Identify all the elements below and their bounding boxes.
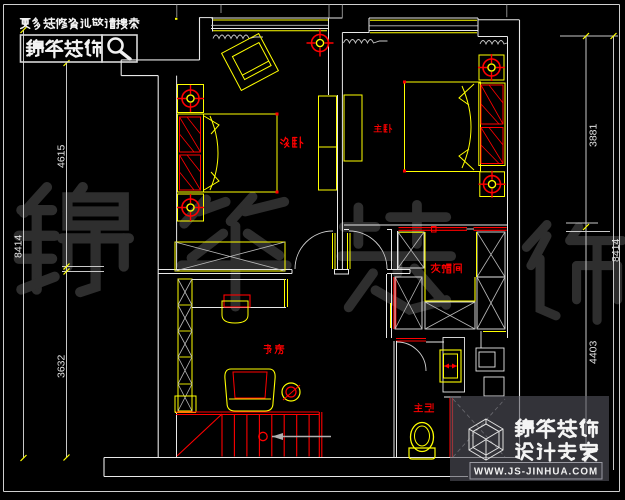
- svg-text:4615: 4615: [56, 144, 68, 168]
- svg-text:WWW.JS-JINHUA.COM: WWW.JS-JINHUA.COM: [474, 467, 598, 478]
- svg-text:3632: 3632: [56, 354, 68, 378]
- svg-text:8414: 8414: [13, 234, 25, 258]
- svg-text:8414: 8414: [610, 238, 622, 262]
- svg-text:4403: 4403: [588, 340, 600, 364]
- svg-text:3881: 3881: [588, 123, 600, 147]
